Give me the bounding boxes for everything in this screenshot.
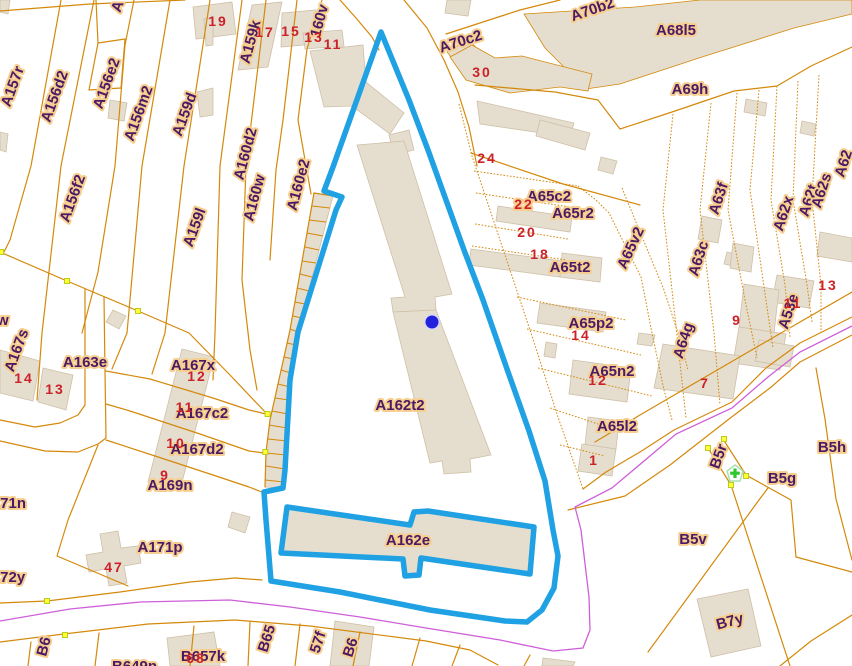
svg-text:30: 30 bbox=[472, 64, 492, 80]
svg-text:19: 19 bbox=[208, 13, 228, 29]
svg-text:A162e: A162e bbox=[386, 532, 430, 549]
svg-text:12: 12 bbox=[187, 368, 207, 384]
svg-text:17: 17 bbox=[255, 24, 275, 40]
svg-text:w: w bbox=[0, 312, 9, 329]
svg-text:22: 22 bbox=[514, 196, 534, 212]
svg-text:A65l2: A65l2 bbox=[597, 418, 637, 435]
svg-text:11: 11 bbox=[176, 399, 195, 415]
svg-text:47: 47 bbox=[104, 559, 124, 575]
svg-text:13: 13 bbox=[304, 29, 324, 45]
svg-text:14: 14 bbox=[571, 327, 591, 343]
svg-text:A68l5: A68l5 bbox=[656, 22, 696, 39]
svg-text:18: 18 bbox=[530, 246, 550, 262]
svg-text:A172y: A172y bbox=[0, 569, 26, 586]
svg-text:68: 68 bbox=[186, 650, 206, 666]
svg-text:24: 24 bbox=[477, 150, 497, 166]
svg-text:1: 1 bbox=[589, 452, 599, 468]
svg-text:A163e: A163e bbox=[63, 354, 107, 371]
svg-text:A171n: A171n bbox=[0, 495, 26, 512]
svg-text:12: 12 bbox=[588, 372, 608, 388]
svg-text:A65r2: A65r2 bbox=[552, 205, 594, 222]
svg-text:10: 10 bbox=[166, 435, 186, 451]
svg-text:20: 20 bbox=[517, 224, 537, 240]
svg-text:15: 15 bbox=[281, 23, 301, 39]
svg-text:A65t2: A65t2 bbox=[550, 259, 591, 276]
svg-text:13: 13 bbox=[45, 381, 65, 397]
svg-text:14: 14 bbox=[14, 370, 34, 386]
svg-text:A162t2: A162t2 bbox=[375, 397, 424, 414]
svg-text:B5h: B5h bbox=[818, 439, 846, 456]
svg-text:B649n: B649n bbox=[112, 658, 157, 666]
svg-text:11: 11 bbox=[784, 295, 803, 311]
svg-text:13: 13 bbox=[818, 277, 838, 293]
svg-text:9: 9 bbox=[160, 467, 170, 483]
svg-text:B5v: B5v bbox=[679, 531, 707, 548]
svg-text:11: 11 bbox=[324, 36, 343, 52]
svg-text:A69h: A69h bbox=[672, 81, 709, 98]
svg-text:9: 9 bbox=[732, 312, 742, 328]
svg-text:A169n: A169n bbox=[147, 477, 192, 494]
svg-text:7: 7 bbox=[700, 375, 710, 391]
svg-text:A171p: A171p bbox=[137, 539, 182, 556]
svg-text:B5g: B5g bbox=[768, 470, 796, 487]
